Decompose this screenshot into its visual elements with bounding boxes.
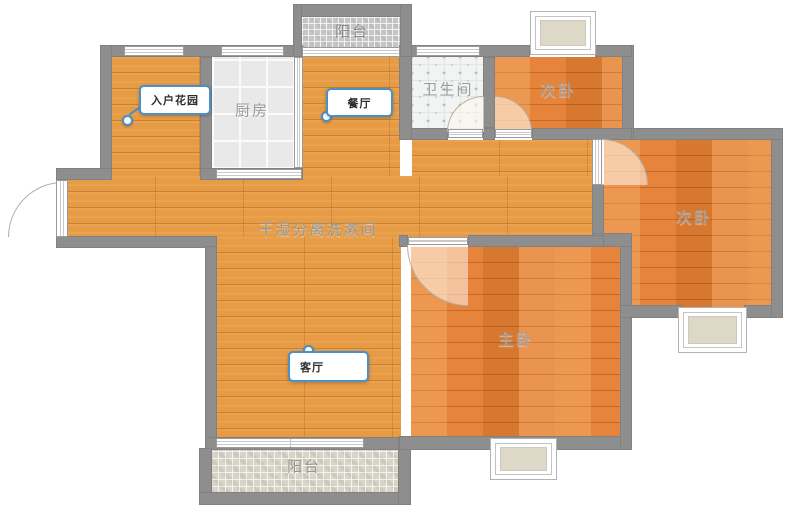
wall	[532, 128, 632, 140]
wall	[200, 57, 212, 180]
label-pin-entry-garden	[122, 115, 133, 126]
room-label-bathroom: 卫生间	[422, 79, 473, 100]
room-label-hallway: 干湿分离洗漱间	[258, 219, 377, 240]
wall	[595, 45, 632, 57]
wall	[56, 168, 112, 180]
door-entrance	[56, 180, 68, 237]
wall	[622, 45, 634, 140]
room-label-kitchen: 厨房	[235, 100, 269, 121]
sliding-door-kitchen-dining	[294, 57, 303, 168]
hallway-floor-upper	[412, 140, 592, 178]
door-bedroom-right	[592, 139, 602, 185]
room-label-bedroom-top: 次卧	[540, 77, 576, 101]
room-label-bedroom-right: 次卧	[676, 204, 712, 228]
wall	[205, 246, 217, 440]
wall	[622, 128, 783, 140]
bay-window-sill	[500, 447, 547, 471]
window-entry-garden	[124, 46, 184, 56]
room-living-floor	[217, 237, 401, 438]
wall	[483, 57, 495, 128]
window-kitchen	[221, 46, 284, 56]
wall	[620, 237, 632, 450]
door-swing-arc-entrance	[8, 182, 63, 237]
door-bathroom	[448, 129, 483, 138]
bay-window-bedroom-right	[678, 307, 747, 353]
wall	[620, 305, 682, 318]
bay-window-master	[490, 438, 557, 480]
bay-window-sill	[688, 316, 737, 344]
door-bedroom-top	[495, 129, 532, 138]
bay-window-sill	[540, 20, 586, 46]
bay-window-bedroom-top	[530, 11, 596, 55]
wall	[293, 4, 302, 57]
wall	[771, 128, 783, 318]
room-tag-living[interactable]: 客厅	[288, 351, 369, 382]
window-bathroom	[416, 46, 480, 56]
room-tag-dining[interactable]: 餐厅	[326, 88, 393, 117]
wall	[56, 236, 217, 248]
room-label-balcony-bottom: 阳台	[287, 456, 321, 477]
wall	[199, 492, 410, 505]
window-balcony-top	[302, 47, 400, 57]
room-tag-entry-garden[interactable]: 入户花园	[139, 85, 211, 115]
wall	[399, 45, 412, 140]
wall	[100, 45, 112, 180]
floor-plan: 阳台 厨房 卫生间 次卧 次卧 干湿分离洗漱间 主卧 阳台 入户花园 餐厅 客厅	[0, 0, 787, 512]
sliding-door-living-balcony	[216, 438, 364, 448]
room-label-master: 主卧	[498, 326, 534, 350]
room-label-balcony-top: 阳台	[335, 21, 369, 42]
wall	[293, 4, 412, 17]
wall	[483, 128, 495, 140]
wall	[400, 4, 412, 57]
door-master	[408, 237, 468, 245]
sliding-door-kitchen-hall	[216, 169, 302, 179]
wall	[468, 235, 604, 247]
wall	[592, 184, 604, 237]
